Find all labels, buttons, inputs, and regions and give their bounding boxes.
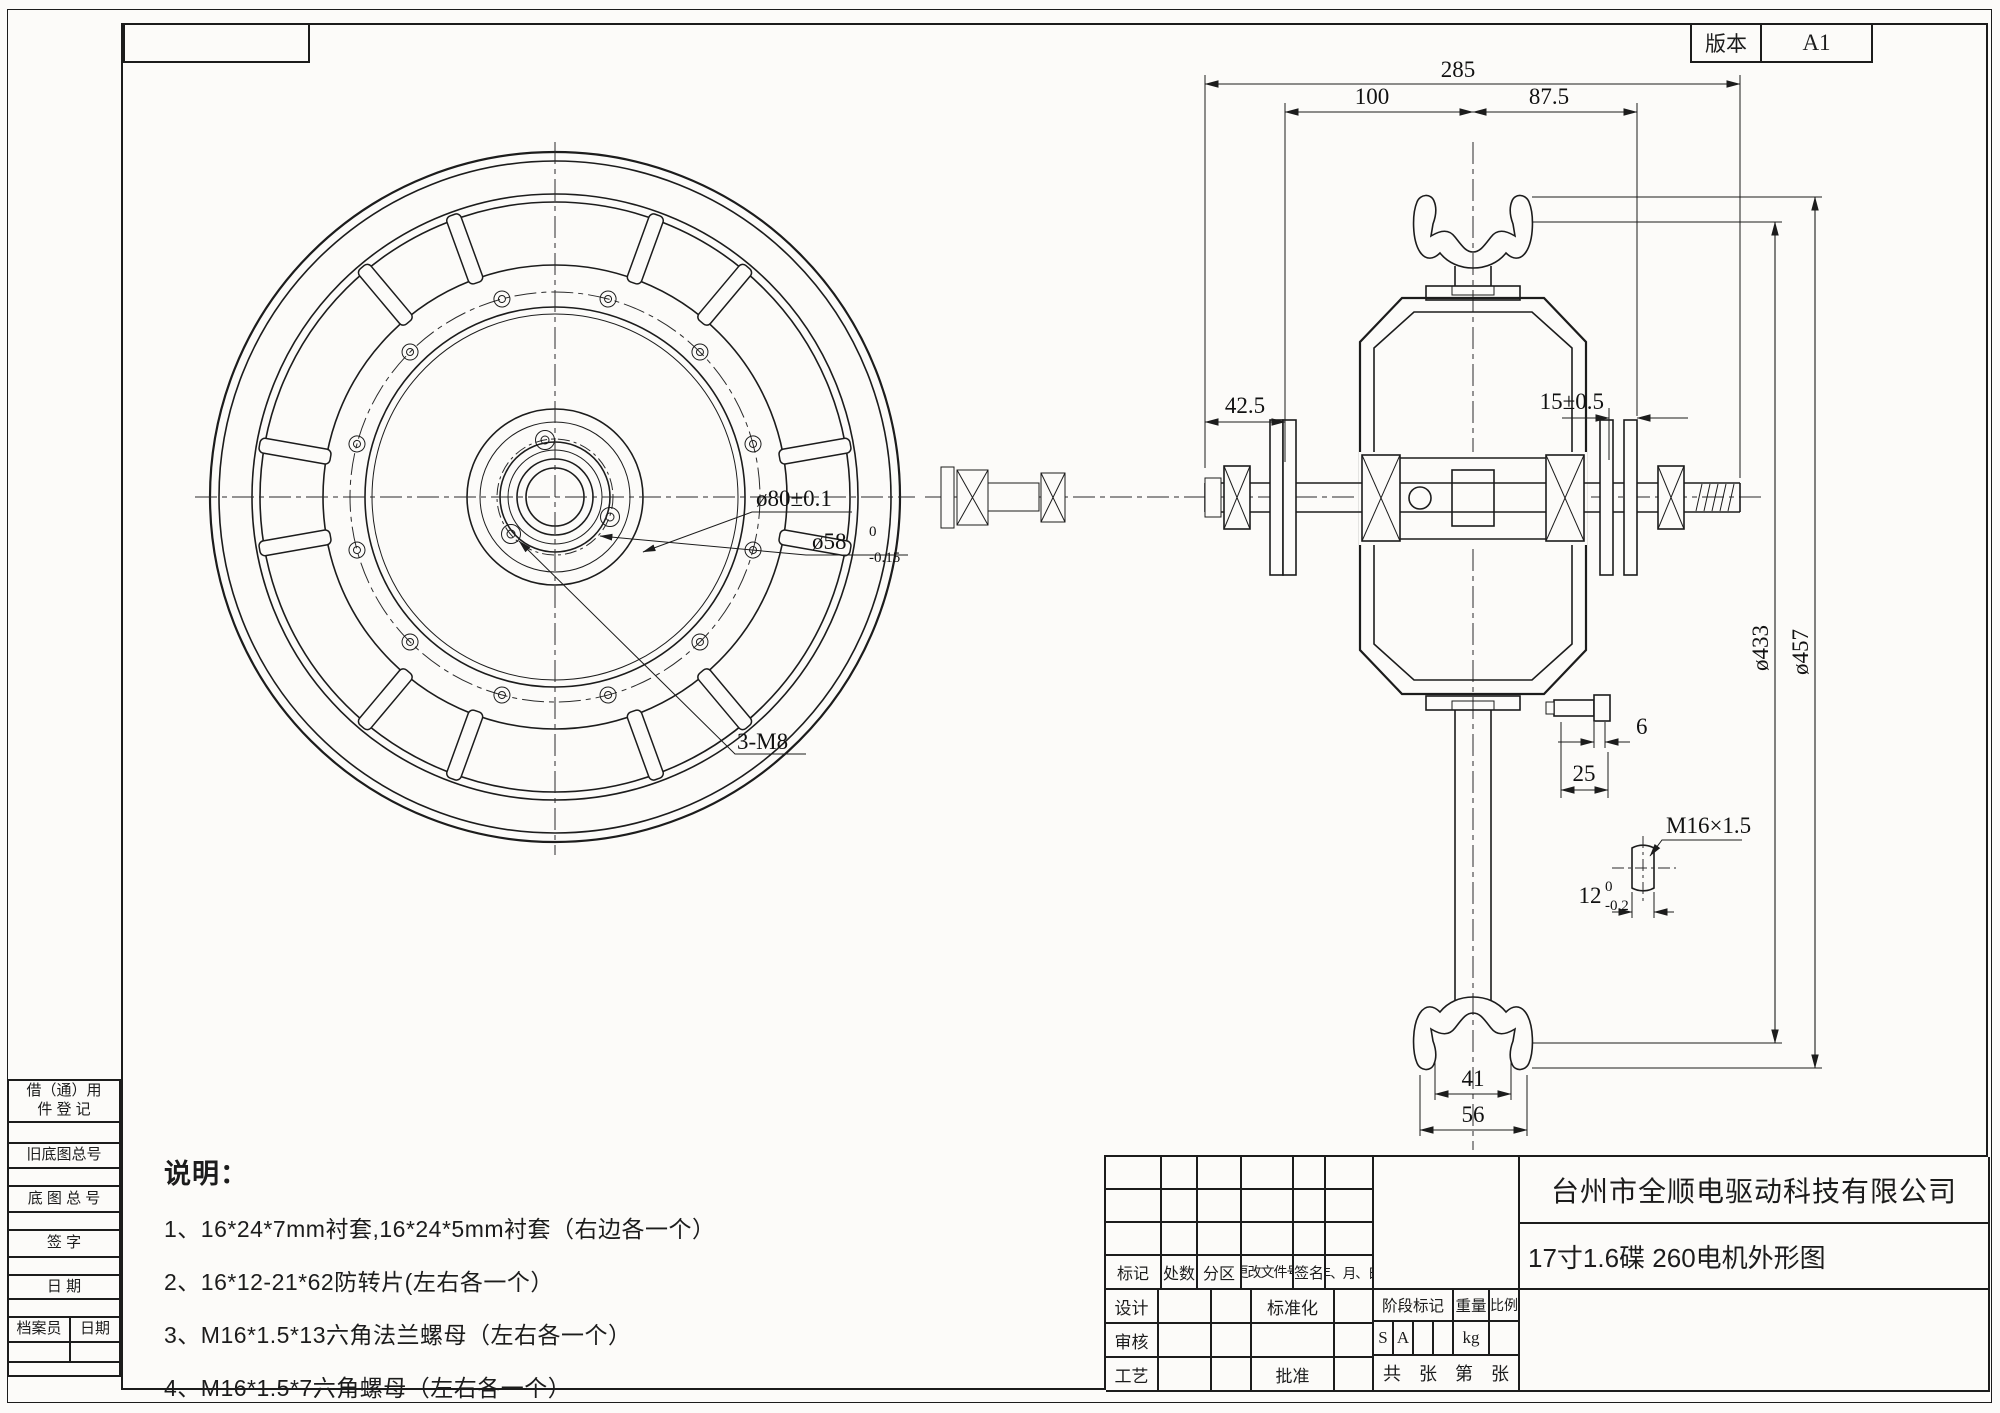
empty-cell — [7, 1167, 121, 1187]
rev-col-date: 年、月、日 — [1326, 1256, 1374, 1290]
stage-value-a: A — [1394, 1322, 1414, 1356]
engineering-drawing-sheet: .ln{stroke:#1c1c1c;stroke-width:1.6;fill… — [0, 0, 2000, 1413]
date-label: 日 期 — [7, 1274, 121, 1300]
empty-row — [7, 1341, 121, 1363]
id-section: 台州市全顺电驱动科技有限公司 17寸1.6碟 260电机外形图 — [1520, 1157, 1990, 1392]
sheet-count-row: 共 张 第 张 — [1374, 1356, 1520, 1392]
rev-col-count: 处数 — [1162, 1256, 1198, 1290]
role-process: 工艺 — [1106, 1358, 1159, 1392]
role-standardize: 标准化 — [1252, 1290, 1335, 1324]
note-item-3: 3、M16*1.5*13六角法兰螺母（左右各一个） — [164, 1316, 716, 1350]
title-block: 标记 处数 分区 更改文件号 签名 年、月、日 设计 标准化 审核 工艺 — [1104, 1155, 1988, 1390]
empty-cell — [7, 1361, 121, 1377]
rev-col-sign: 签名 — [1294, 1256, 1326, 1290]
role-review: 审核 — [1106, 1324, 1159, 1358]
role-design: 设计 — [1106, 1290, 1159, 1324]
stage-mark-label: 阶段标记 — [1374, 1290, 1454, 1322]
signature-label: 签 字 — [7, 1229, 121, 1258]
archivist-row: 档案员 日期 — [7, 1316, 121, 1343]
drawing-title: 17寸1.6碟 260电机外形图 — [1520, 1224, 1990, 1290]
stage-section: 阶段标记 重量 比例 S A kg 共 张 第 张 — [1374, 1157, 1520, 1392]
weight-label: 重量 — [1454, 1290, 1490, 1322]
empty-cell — [7, 1256, 121, 1276]
stage-value-s: S — [1374, 1322, 1394, 1356]
notes-title: 说明： — [164, 1152, 716, 1191]
archive-date-label: 日期 — [71, 1318, 119, 1341]
scale-label: 比例 — [1490, 1290, 1520, 1322]
top-left-box — [123, 23, 310, 63]
borrow-use-register: 借（通）用 件 登 记 — [7, 1079, 121, 1123]
note-item-4: 4、M16*1.5*7六角螺母（左右各一个） — [164, 1369, 716, 1403]
weight-unit: kg — [1454, 1322, 1490, 1356]
left-register-strip: 借（通）用 件 登 记 旧底图总号 底 图 总 号 签 字 日 期 档案员 日期 — [7, 1081, 121, 1377]
revision-section: 标记 处数 分区 更改文件号 签名 年、月、日 设计 标准化 审核 工艺 — [1106, 1157, 1374, 1392]
rev-col-mark: 标记 — [1106, 1256, 1162, 1290]
notes-block: 说明： 1、16*24*7mm衬套,16*24*5mm衬套（右边各一个） 2、1… — [164, 1152, 716, 1403]
company-name: 台州市全顺电驱动科技有限公司 — [1520, 1157, 1990, 1224]
archivist-label: 档案员 — [9, 1318, 71, 1341]
note-item-1: 1、16*24*7mm衬套,16*24*5mm衬套（右边各一个） — [164, 1210, 716, 1244]
role-approve: 批准 — [1252, 1358, 1335, 1392]
empty-cell — [7, 1121, 121, 1144]
note-item-2: 2、16*12-21*62防转片(左右各一个） — [164, 1263, 716, 1297]
rev-col-doc-no: 更改文件号 — [1242, 1256, 1294, 1290]
base-drawing-no: 底 图 总 号 — [7, 1185, 121, 1213]
empty-cell — [7, 1211, 121, 1231]
version-label: 版本 — [1692, 25, 1762, 61]
version-block: 版本 A1 — [1690, 23, 1873, 63]
rev-col-zone: 分区 — [1198, 1256, 1242, 1290]
empty-cell — [7, 1298, 121, 1318]
old-base-drawing-no: 旧底图总号 — [7, 1142, 121, 1169]
version-value: A1 — [1762, 25, 1871, 61]
